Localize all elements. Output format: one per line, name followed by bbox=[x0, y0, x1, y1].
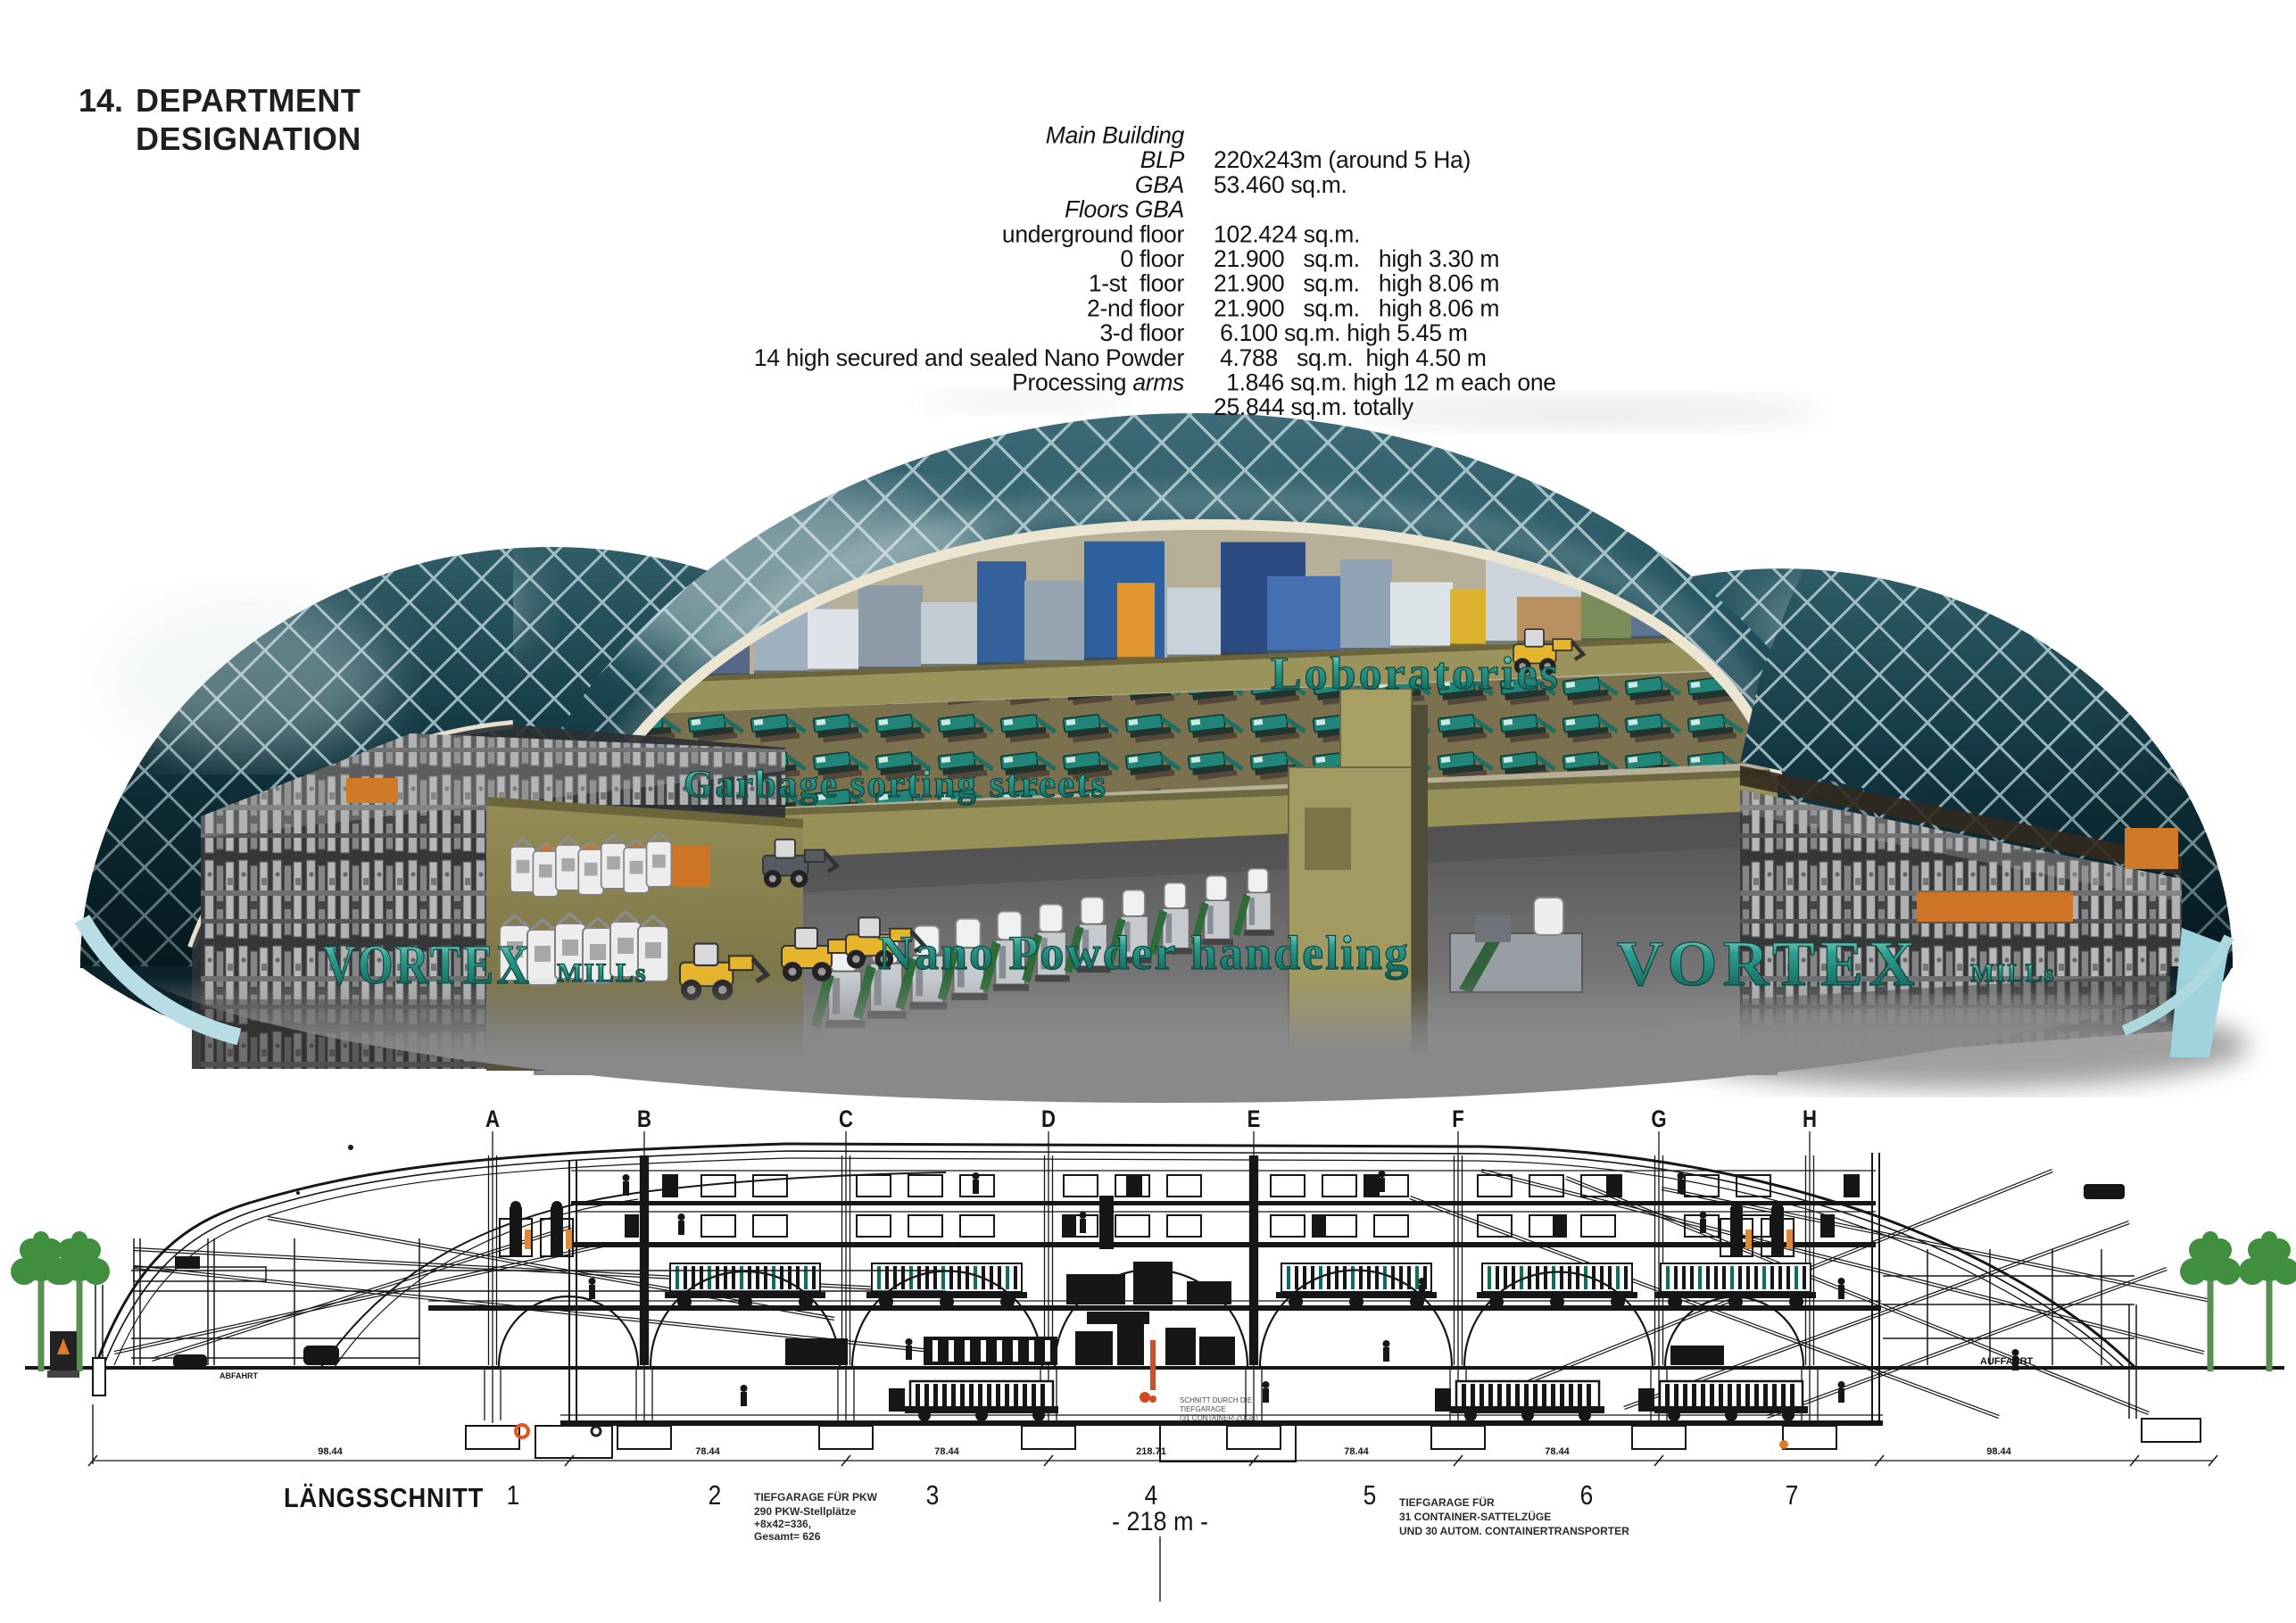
svg-text:2-nd floor: 2-nd floor bbox=[1087, 294, 1184, 321]
svg-text:UND 30 AUTOM. CONTAINERTRANSPO: UND 30 AUTOM. CONTAINERTRANSPORTER bbox=[1399, 1525, 1629, 1537]
svg-text:B: B bbox=[637, 1106, 651, 1133]
svg-text:VORTEX: VORTEX bbox=[1617, 928, 1920, 999]
svg-text:25.844 sq.m. totally: 25.844 sq.m. totally bbox=[1214, 393, 1414, 420]
svg-text:53.460 sq.m.: 53.460 sq.m. bbox=[1214, 171, 1347, 198]
svg-text:MILLs: MILLs bbox=[1970, 960, 2056, 988]
svg-text:78.44: 78.44 bbox=[695, 1446, 720, 1457]
svg-text:290 PKW-Stellplätze: 290 PKW-Stellplätze bbox=[754, 1505, 857, 1518]
svg-text:218.71: 218.71 bbox=[1136, 1446, 1166, 1457]
svg-text:- 218 m -: - 218 m - bbox=[1112, 1507, 1208, 1537]
svg-text:Gesamt= 626: Gesamt= 626 bbox=[754, 1530, 821, 1543]
svg-text:2: 2 bbox=[709, 1480, 722, 1511]
svg-text:21.900 sq.m. high 8.06 m: 21.900 sq.m. high 8.06 m bbox=[1214, 270, 1499, 297]
svg-text:6: 6 bbox=[1580, 1480, 1594, 1511]
svg-text:98.44: 98.44 bbox=[318, 1446, 343, 1457]
svg-text:21.900 sq.m. high 8.06 m: 21.900 sq.m. high 8.06 m bbox=[1214, 294, 1499, 321]
svg-text:3: 3 bbox=[926, 1480, 940, 1511]
svg-text:G: G bbox=[1651, 1106, 1666, 1133]
svg-text:A: A bbox=[485, 1106, 500, 1133]
svg-text:H: H bbox=[1803, 1106, 1817, 1133]
svg-text:Loboratories: Loboratories bbox=[1271, 649, 1561, 700]
svg-text:TIEFGARAGE FÜR: TIEFGARAGE FÜR bbox=[1399, 1495, 1495, 1509]
svg-text:4.788 sq.m. high 4.50 m: 4.788 sq.m. high 4.50 m bbox=[1214, 344, 1487, 371]
svg-text:Floors GBA: Floors GBA bbox=[1065, 196, 1184, 223]
svg-text:98.44: 98.44 bbox=[1986, 1446, 2011, 1457]
svg-text:AUFFAHRT: AUFFAHRT bbox=[1980, 1356, 2034, 1367]
svg-text:ABFAHRT: ABFAHRT bbox=[220, 1371, 258, 1380]
svg-text:D: D bbox=[1041, 1106, 1056, 1133]
svg-text:GBA: GBA bbox=[1135, 171, 1184, 198]
svg-text:78.44: 78.44 bbox=[934, 1446, 959, 1457]
svg-text:220x243m (around 5 Ha): 220x243m (around 5 Ha) bbox=[1214, 146, 1471, 173]
svg-text:6.100 sq.m. high 5.45 m: 6.100 sq.m. high 5.45 m bbox=[1214, 319, 1467, 346]
svg-text:TIEFGARAGE: TIEFGARAGE bbox=[1180, 1405, 1226, 1413]
svg-text:VORTEX: VORTEX bbox=[323, 934, 532, 996]
svg-text:78.44: 78.44 bbox=[1344, 1446, 1369, 1457]
svg-text:Nano Powder handeling: Nano Powder handeling bbox=[878, 926, 1410, 980]
svg-text:7: 7 bbox=[1786, 1480, 1799, 1511]
svg-text:underground floor: underground floor bbox=[1002, 220, 1185, 247]
svg-text:(31 CONTAINER-ZÜGE): (31 CONTAINER-ZÜGE) bbox=[1180, 1414, 1258, 1422]
svg-text:Main Building: Main Building bbox=[1046, 122, 1185, 149]
svg-text:78.44: 78.44 bbox=[1545, 1446, 1570, 1457]
svg-text:F: F bbox=[1452, 1106, 1464, 1133]
svg-text:1.846 sq.m. high 12 m each one: 1.846 sq.m. high 12 m each one bbox=[1214, 369, 1556, 396]
svg-text:SCHNITT DURCH DIE: SCHNITT DURCH DIE bbox=[1180, 1396, 1252, 1404]
svg-text:31 CONTAINER-SATTELZÜGE: 31 CONTAINER-SATTELZÜGE bbox=[1399, 1510, 1551, 1523]
svg-text:21.900 sq.m. high 3.30 m: 21.900 sq.m. high 3.30 m bbox=[1214, 245, 1499, 272]
svg-text:1: 1 bbox=[507, 1480, 520, 1511]
svg-text:3-d floor: 3-d floor bbox=[1099, 319, 1184, 346]
svg-text:+8x42=336,: +8x42=336, bbox=[754, 1518, 811, 1530]
svg-text:14 high secured and sealed Nan: 14 high secured and sealed Nano Powder bbox=[754, 344, 1185, 371]
svg-text:1-st floor: 1-st floor bbox=[1089, 270, 1185, 297]
svg-text:14.: 14. bbox=[79, 82, 123, 119]
svg-text:0 floor: 0 floor bbox=[1120, 245, 1184, 272]
svg-text:Processing arms: Processing arms bbox=[1012, 369, 1184, 396]
svg-text:TIEFGARAGE FÜR PKW: TIEFGARAGE FÜR PKW bbox=[754, 1490, 878, 1503]
svg-text:102.424 sq.m.: 102.424 sq.m. bbox=[1214, 220, 1360, 247]
svg-text:DEPARTMENT: DEPARTMENT bbox=[136, 82, 361, 119]
svg-text:C: C bbox=[839, 1106, 853, 1133]
svg-text:E: E bbox=[1247, 1106, 1261, 1133]
svg-text:DESIGNATION: DESIGNATION bbox=[136, 120, 361, 157]
svg-text:5: 5 bbox=[1364, 1480, 1377, 1511]
svg-text:BLP: BLP bbox=[1140, 146, 1185, 173]
svg-text:MILLs: MILLs bbox=[557, 958, 648, 988]
svg-text:LÄNGSSCHNITT: LÄNGSSCHNITT bbox=[284, 1482, 484, 1513]
svg-text:Garbage sorting streets: Garbage sorting streets bbox=[684, 764, 1107, 806]
